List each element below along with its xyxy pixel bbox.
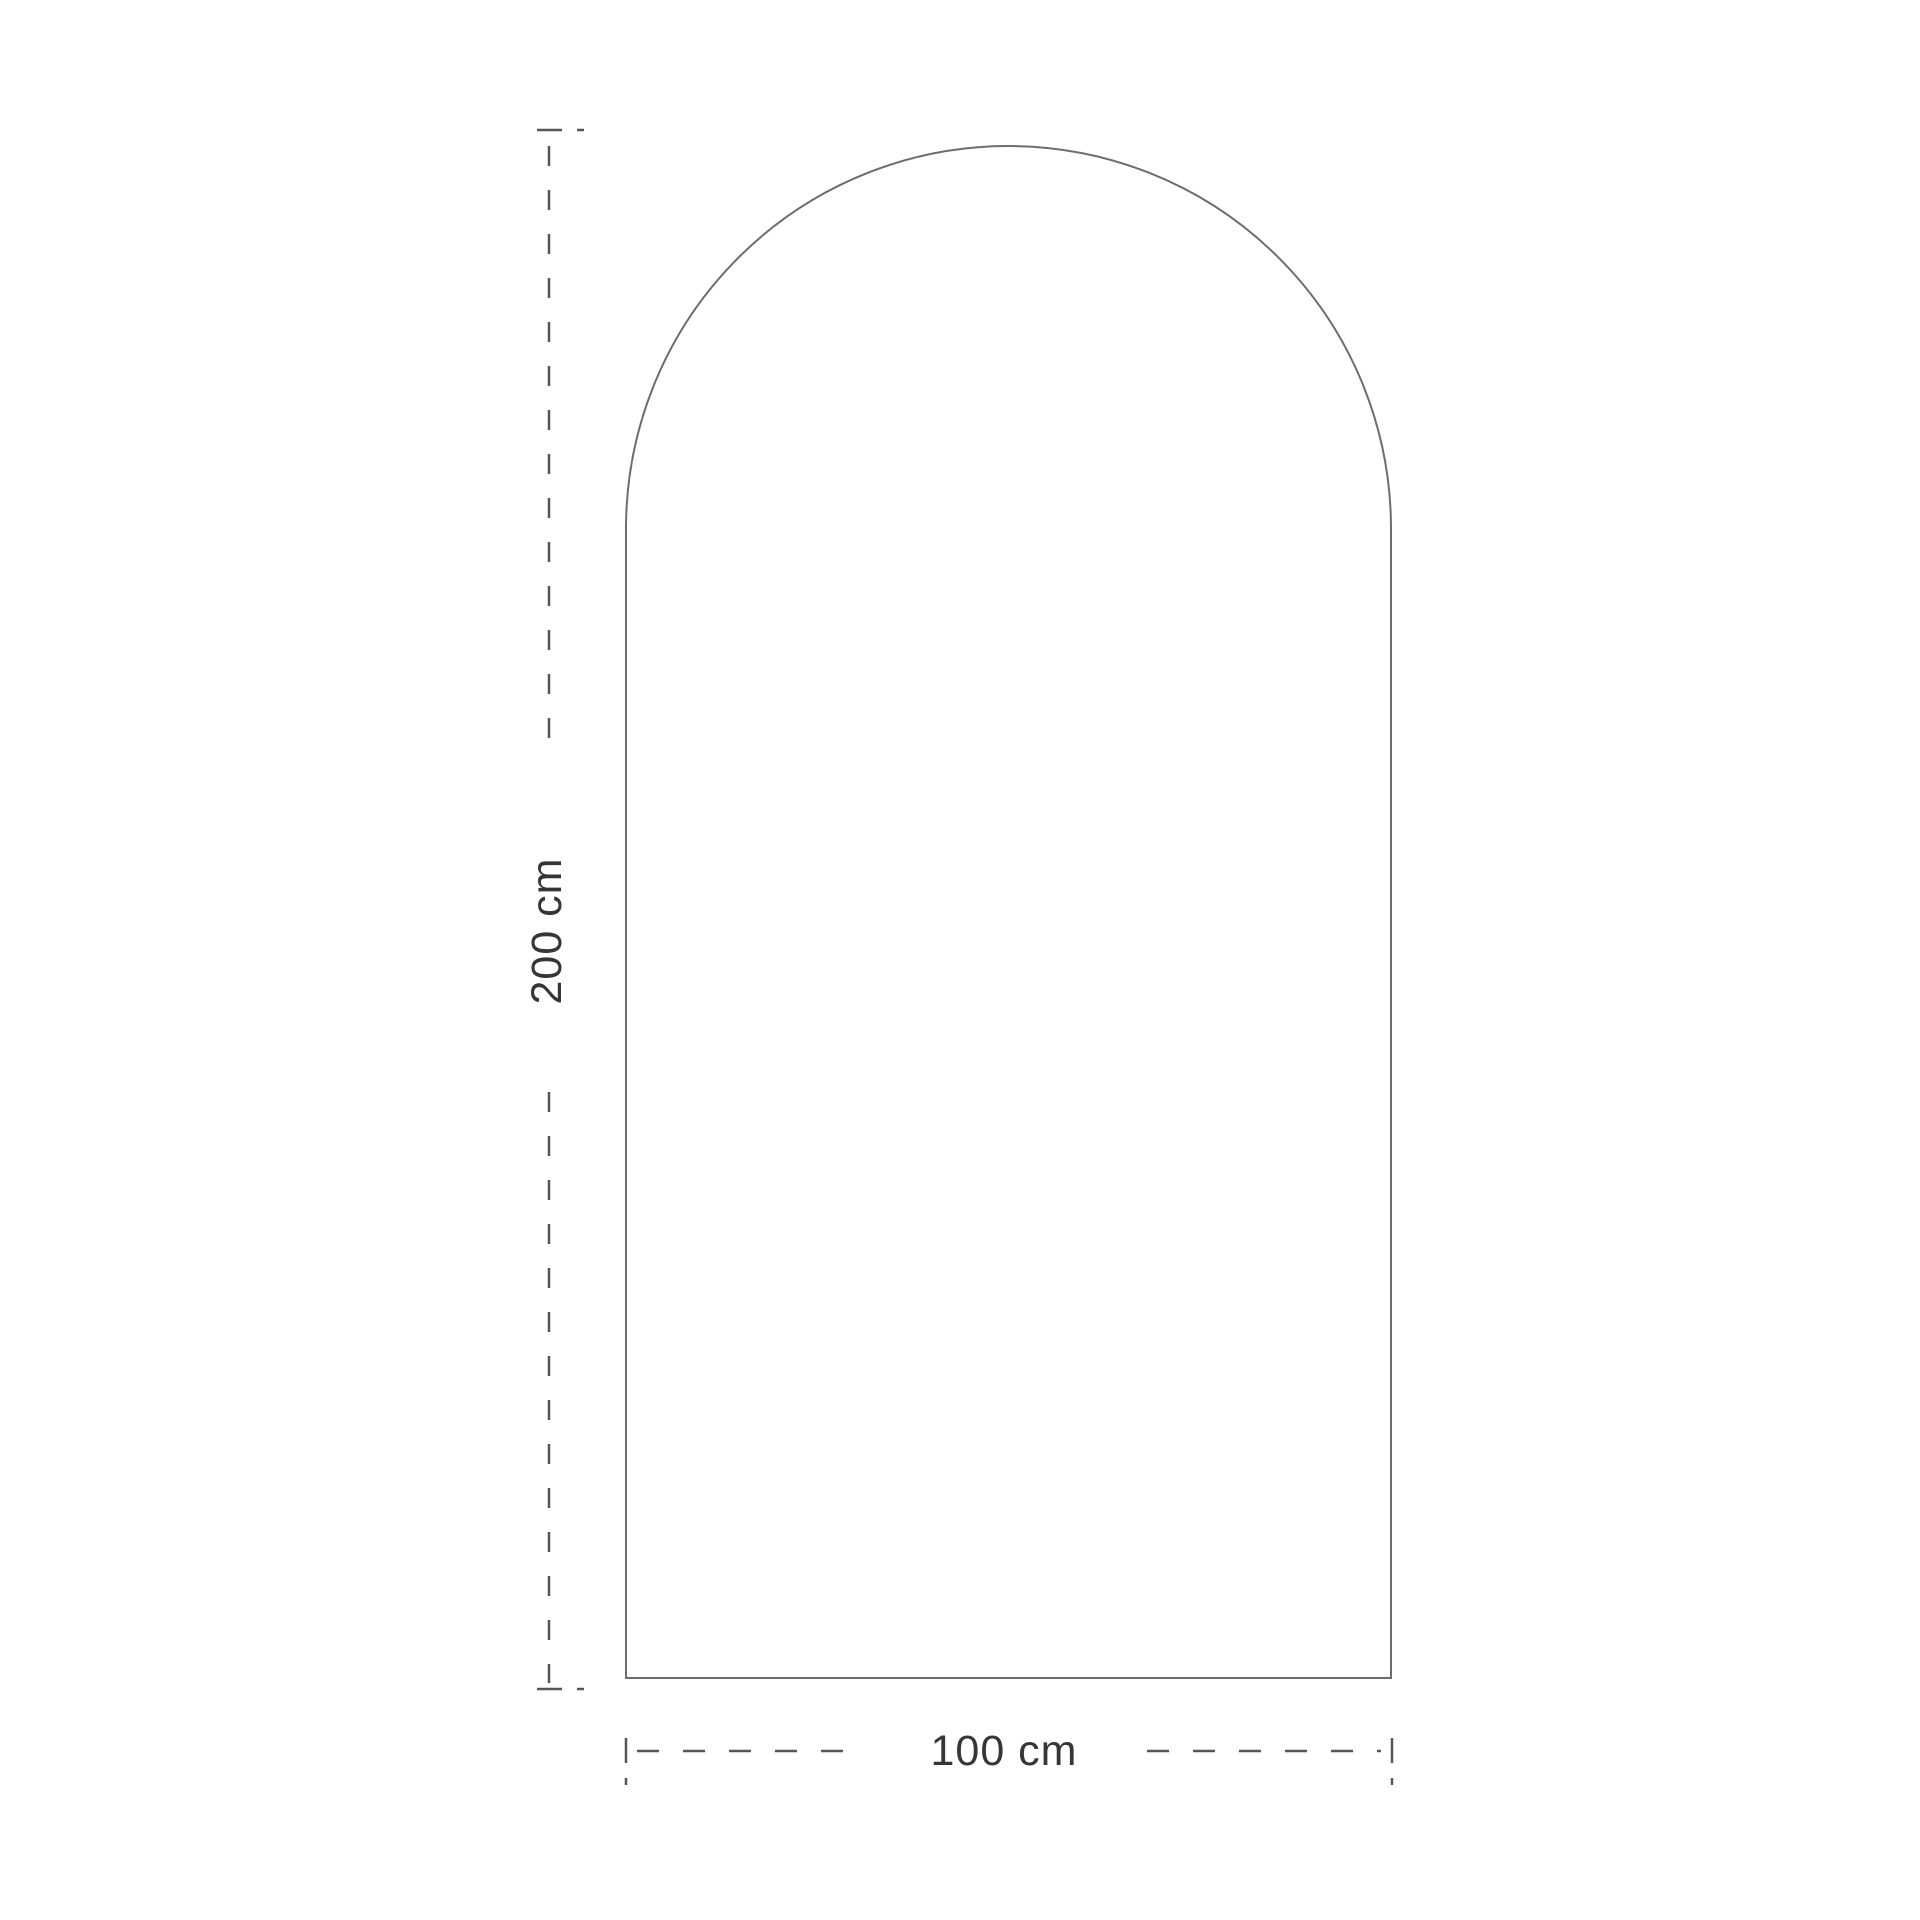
height-dimension: 200 cm	[523, 130, 584, 1689]
dimension-diagram: 200 cm 100 cm	[0, 0, 1920, 1920]
width-dimension: 100 cm	[626, 1727, 1392, 1785]
height-dimension-label: 200 cm	[523, 857, 571, 1004]
width-dimension-label: 100 cm	[930, 1727, 1077, 1775]
diagram-svg: 200 cm 100 cm	[0, 0, 1920, 1920]
arch-panel-outline	[626, 146, 1391, 1678]
